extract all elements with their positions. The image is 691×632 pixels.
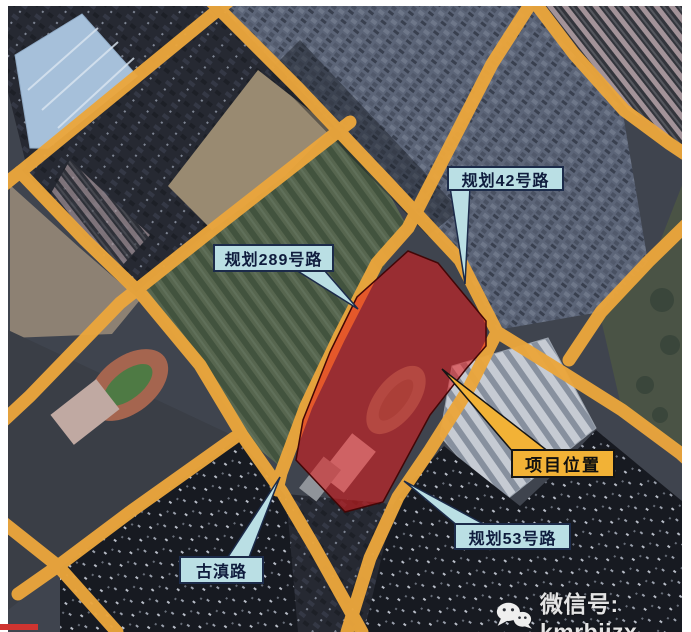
wechat-id-text: 微信号: kmrbjjzx [540, 585, 691, 632]
wechat-icon [496, 599, 534, 632]
label-road-289: 规划289号路 [213, 244, 334, 272]
label-road-53: 规划53号路 [454, 523, 571, 550]
label-gudian-road: 古滇路 [179, 556, 264, 584]
label-road-42: 规划42号路 [447, 166, 564, 191]
wechat-id-badge: 微信号: kmrbjjzx [496, 585, 691, 632]
label-project-location: 项目位置 [511, 449, 615, 478]
satellite-map [0, 0, 691, 632]
red-edge-mark [0, 624, 38, 630]
map-container: 规划42号路 规划289号路 项目位置 规划53号路 古滇路 微信号: kmrb… [0, 0, 691, 632]
